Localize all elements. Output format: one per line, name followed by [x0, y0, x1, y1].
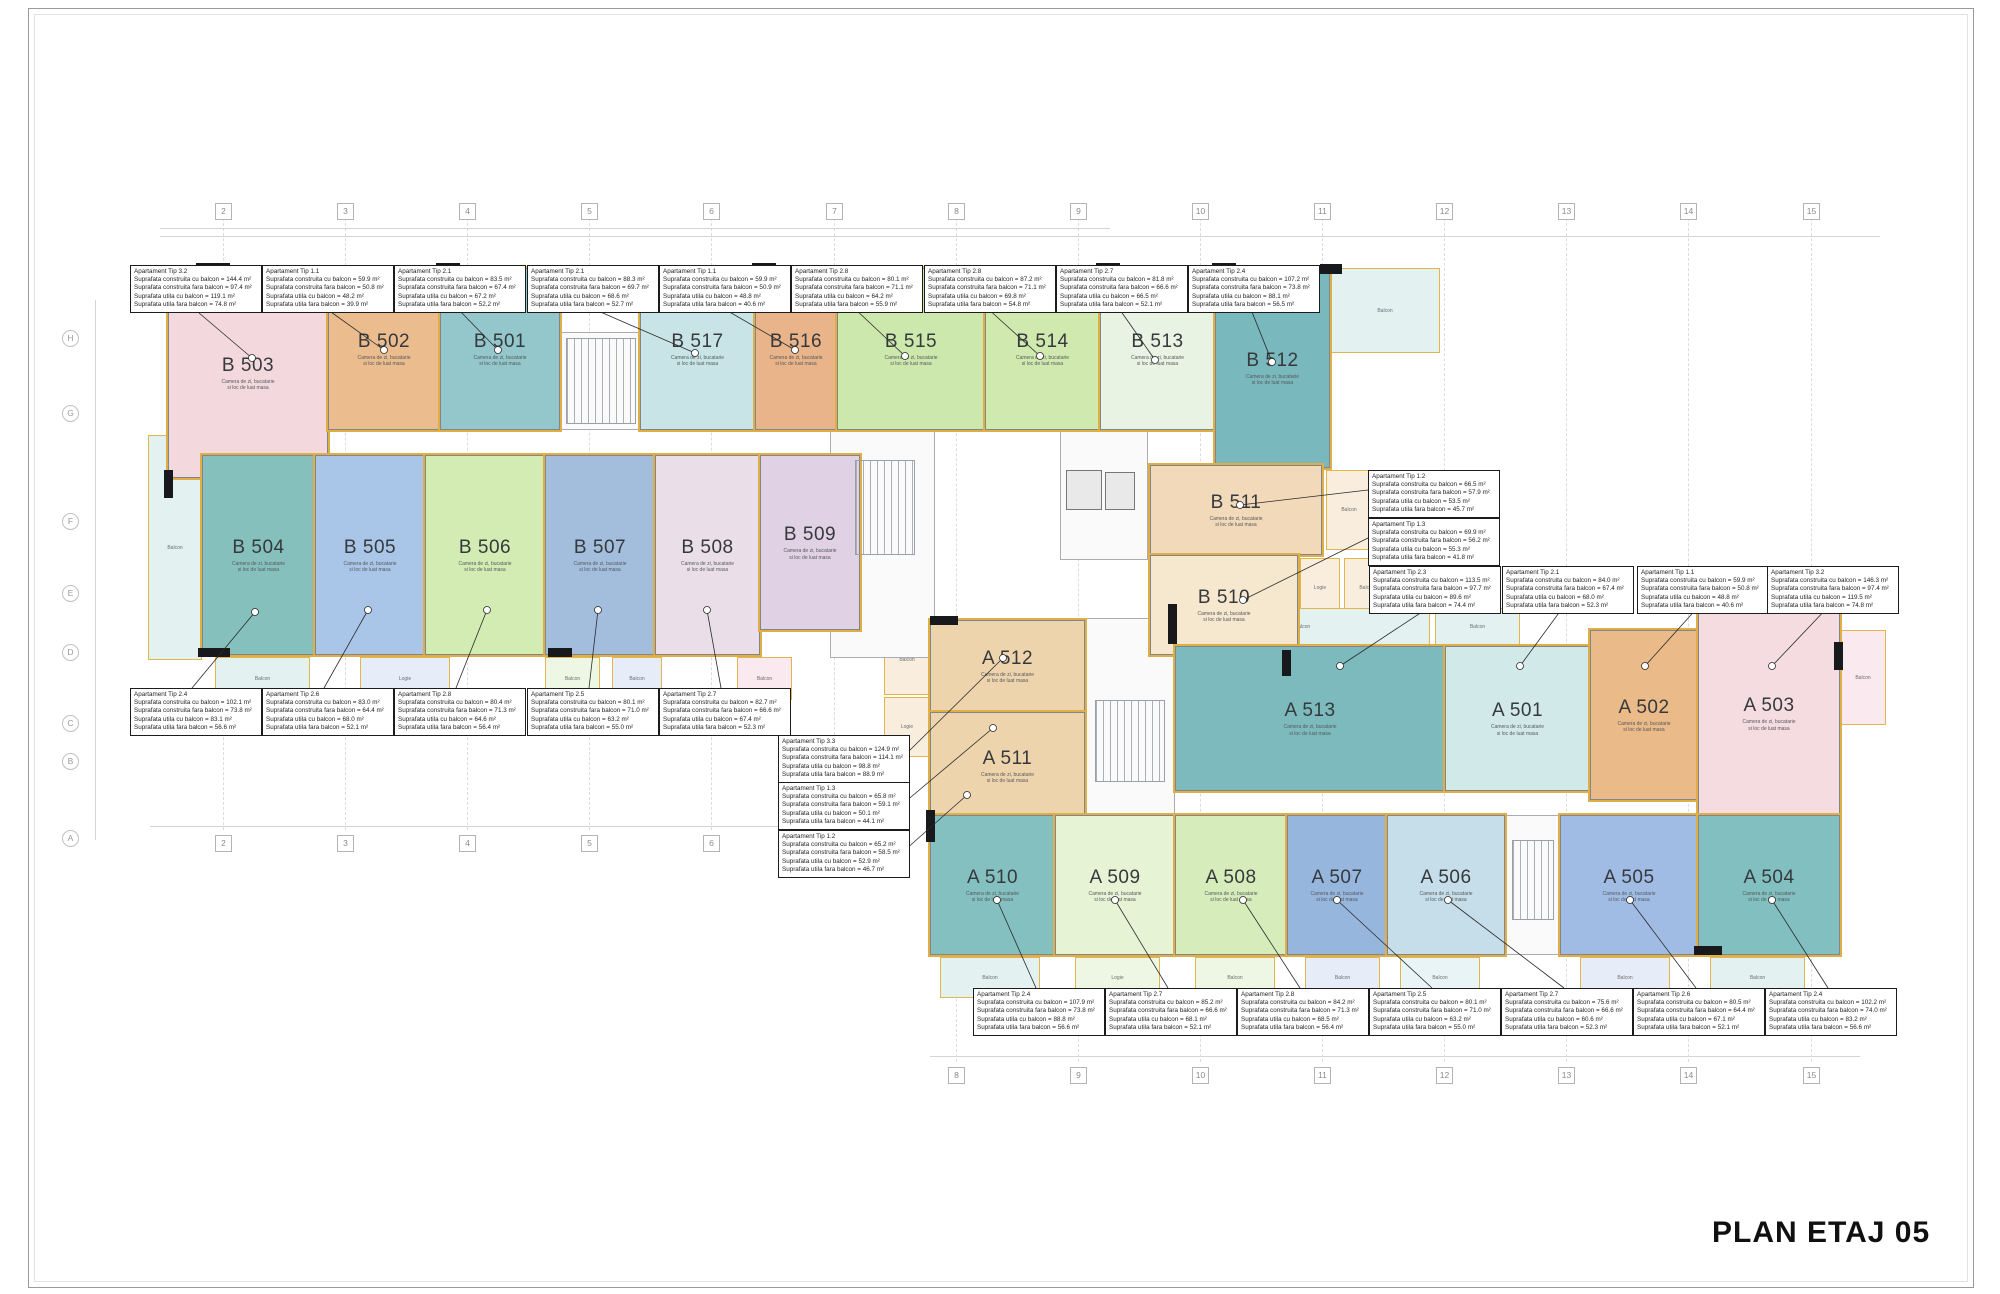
annotation-line: Suprafata construita cu balcon = 80.1 m²: [795, 276, 919, 284]
annotation-line: Suprafata construita fara balcon = 58.5 …: [782, 849, 906, 857]
annotation-line: Suprafata construita cu balcon = 107.9 m…: [977, 999, 1101, 1007]
unit-room-caption: Camera de zi, bucatarie si loc de luat m…: [981, 772, 1034, 785]
annotation-type: Apartament Tip 2.4: [134, 691, 258, 699]
grid-column-bubble: 5: [581, 835, 598, 852]
unit-label: B 502: [358, 331, 410, 353]
balcony-label: Balcon: [1227, 975, 1242, 981]
apartment-type-annotation: Apartament Tip 1.3 Suprafata construita …: [1368, 518, 1500, 566]
apartment-type-annotation: Apartament Tip 2.6 Suprafata construita …: [1633, 988, 1765, 1036]
balcony-label: Logie: [1111, 975, 1123, 981]
unit-room-caption: Camera de zi, bucatarie si loc de luat m…: [1131, 355, 1184, 368]
annotation-line: Suprafata utila cu balcon = 68.1 m²: [1109, 1016, 1233, 1024]
annotation-type: Apartament Tip 1.2: [1372, 473, 1496, 481]
annotation-line: Suprafata construita fara balcon = 57.9 …: [1372, 489, 1496, 497]
annotation-line: Suprafata utila cu balcon = 89.6 m²: [1373, 594, 1497, 602]
annotation-line: Suprafata construita cu balcon = 69.9 m²: [1372, 529, 1496, 537]
unit-room-caption: Camera de zi, bucatarie si loc de luat m…: [1016, 355, 1069, 368]
annotation-line: Suprafata utila cu balcon = 66.5 m²: [1060, 293, 1184, 301]
annotation-line: Suprafata utila fara balcon = 55.0 m²: [531, 724, 655, 732]
stairs: [855, 460, 915, 555]
unit-a508: A 508 Camera de zi, bucatarie si loc de …: [1175, 815, 1287, 955]
annotation-line: Suprafata utila cu balcon = 98.8 m²: [782, 763, 906, 771]
unit-room-caption: Camera de zi, bucatarie si loc de luat m…: [473, 355, 526, 368]
annotation-line: Suprafata utila fara balcon = 39.9 m²: [266, 301, 390, 309]
balcony-label: Balcon: [982, 975, 997, 981]
unit-a509: A 509 Camera de zi, bucatarie si loc de …: [1055, 815, 1175, 955]
annotation-line: Suprafata construita cu balcon = 88.3 m²: [531, 276, 655, 284]
annotation-type: Apartament Tip 2.4: [977, 991, 1101, 999]
annotation-line: Suprafata utila fara balcon = 52.3 m²: [1505, 1024, 1629, 1032]
annotation-line: Suprafata construita cu balcon = 65.2 m²: [782, 841, 906, 849]
annotation-line: Suprafata utila fara balcon = 54.8 m²: [928, 301, 1052, 309]
unit-label: A 501: [1492, 700, 1543, 722]
unit-a502: A 502 Camera de zi, bucatarie si loc de …: [1590, 630, 1698, 800]
annotation-line: Suprafata construita fara balcon = 71.3 …: [398, 707, 522, 715]
unit-room-caption: Camera de zi, bucatarie si loc de luat m…: [1310, 891, 1363, 904]
annotation-line: Suprafata utila cu balcon = 67.2 m²: [398, 293, 522, 301]
annotation-line: Suprafata utila fara balcon = 52.1 m²: [1109, 1024, 1233, 1032]
annotation-line: Suprafata construita fara balcon = 67.4 …: [398, 284, 522, 292]
annotation-line: Suprafata construita fara balcon = 66.6 …: [663, 707, 787, 715]
annotation-line: Suprafata utila cu balcon = 68.6 m²: [531, 293, 655, 301]
annotation-line: Suprafata construita cu balcon = 107.2 m…: [1192, 276, 1316, 284]
annotation-line: Suprafata construita cu balcon = 113.5 m…: [1373, 577, 1497, 585]
unit-room-caption: Camera de zi, bucatarie si loc de luat m…: [966, 891, 1019, 904]
unit-label: B 513: [1131, 331, 1183, 353]
unit-label: A 513: [1284, 700, 1335, 722]
unit-label: B 516: [770, 331, 822, 353]
unit-a501: A 501 Camera de zi, bucatarie si loc de …: [1445, 646, 1590, 791]
unit-label: B 510: [1198, 587, 1250, 609]
grid-column-bubble: 3: [337, 835, 354, 852]
apartment-type-annotation: Apartament Tip 1.3 Suprafata construita …: [778, 782, 910, 830]
apartment-type-annotation: Apartament Tip 2.1 Suprafata construita …: [1502, 566, 1634, 614]
grid-column-bubble: 15: [1803, 203, 1820, 220]
annotation-line: Suprafata utila fara balcon = 40.6 m²: [663, 301, 787, 309]
apartment-type-annotation: Apartament Tip 2.5 Suprafata construita …: [527, 688, 659, 736]
grid-row-bubble: A: [62, 830, 79, 847]
unit-room-caption: Camera de zi, bucatarie si loc de luat m…: [769, 355, 822, 368]
annotation-type: Apartament Tip 2.3: [1373, 569, 1497, 577]
balcony-label: Balcon: [167, 545, 182, 551]
annotation-line: Suprafata utila fara balcon = 56.6 m²: [1769, 1024, 1893, 1032]
wall-segment: [926, 810, 935, 842]
unit-b509: B 509 Camera de zi, bucatarie si loc de …: [760, 455, 860, 630]
annotation-line: Suprafata construita cu balcon = 59.9 m²: [266, 276, 390, 284]
wall-segment: [1694, 946, 1722, 955]
annotation-line: Suprafata utila cu balcon = 63.2 m²: [531, 716, 655, 724]
grid-column-bubble: 5: [581, 203, 598, 220]
annotation-line: Suprafata construita cu balcon = 146.3 m…: [1771, 577, 1895, 585]
annotation-line: Suprafata construita cu balcon = 144.4 m…: [134, 276, 258, 284]
wall-segment: [1320, 264, 1342, 274]
unit-room-caption: Camera de zi, bucatarie si loc de luat m…: [1283, 724, 1336, 737]
annotation-line: Suprafata utila fara balcon = 44.1 m²: [782, 818, 906, 826]
unit-room-caption: Camera de zi, bucatarie si loc de luat m…: [981, 672, 1034, 685]
unit-b506: B 506 Camera de zi, bucatarie si loc de …: [425, 455, 545, 655]
grid-column-bubble: 3: [337, 203, 354, 220]
annotation-line: Suprafata construita fara balcon = 66.6 …: [1109, 1007, 1233, 1015]
apartment-type-annotation: Apartament Tip 2.1 Suprafata construita …: [527, 265, 659, 313]
annotation-line: Suprafata construita cu balcon = 83.5 m²: [398, 276, 522, 284]
elevator: [1066, 470, 1102, 510]
annotation-line: Suprafata construita cu balcon = 102.1 m…: [134, 699, 258, 707]
annotation-type: Apartament Tip 2.5: [531, 691, 655, 699]
annotation-line: Suprafata construita fara balcon = 73.8 …: [134, 707, 258, 715]
unit-room-caption: Camera de zi, bucatarie si loc de luat m…: [221, 379, 274, 392]
unit-b507: B 507 Camera de zi, bucatarie si loc de …: [545, 455, 655, 655]
annotation-line: Suprafata utila cu balcon = 88.8 m²: [977, 1016, 1101, 1024]
wall-segment: [1168, 604, 1177, 644]
unit-room-caption: Camera de zi, bucatarie si loc de luat m…: [1209, 516, 1262, 529]
apartment-type-annotation: Apartament Tip 2.7 Suprafata construita …: [1056, 265, 1188, 313]
balcony: Balcon: [1326, 470, 1372, 550]
annotation-line: Suprafata utila fara balcon = 46.7 m²: [782, 866, 906, 874]
annotation-line: Suprafata construita fara balcon = 71.0 …: [531, 707, 655, 715]
terrace: Balcon: [1330, 268, 1440, 353]
grid-column-bubble: 9: [1070, 203, 1087, 220]
apartment-type-annotation: Apartament Tip 1.2 Suprafata construita …: [778, 830, 910, 878]
annotation-line: Suprafata construita fara balcon = 73.8 …: [977, 1007, 1101, 1015]
balcony-label: Balcon: [1377, 308, 1392, 314]
apartment-type-annotation: Apartament Tip 3.2 Suprafata construita …: [1767, 566, 1899, 614]
annotation-line: Suprafata utila cu balcon = 68.5 m²: [1241, 1016, 1365, 1024]
annotation-line: Suprafata construita fara balcon = 97.4 …: [1771, 585, 1895, 593]
grid-column-bubble: 6: [703, 203, 720, 220]
unit-b511: B 511 Camera de zi, bucatarie si loc de …: [1150, 465, 1322, 555]
annotation-line: Suprafata construita fara balcon = 50.8 …: [1641, 585, 1765, 593]
unit-room-caption: Camera de zi, bucatarie si loc de luat m…: [573, 561, 626, 574]
grid-row-bubble: G: [62, 405, 79, 422]
balcony-label: Balcon: [1341, 507, 1356, 513]
unit-room-caption: Camera de zi, bucatarie si loc de luat m…: [1742, 719, 1795, 732]
annotation-line: Suprafata construita fara balcon = 50.9 …: [663, 284, 787, 292]
annotation-type: Apartament Tip 2.1: [398, 268, 522, 276]
unit-label: B 509: [784, 524, 836, 546]
annotation-line: Suprafata utila cu balcon = 119.1 m²: [134, 293, 258, 301]
annotation-type: Apartament Tip 2.7: [1505, 991, 1629, 999]
annotation-line: Suprafata utila cu balcon = 67.1 m²: [1637, 1016, 1761, 1024]
annotation-line: Suprafata utila fara balcon = 52.1 m²: [1637, 1024, 1761, 1032]
unit-label: A 506: [1420, 867, 1471, 889]
annotation-line: Suprafata utila cu balcon = 88.1 m²: [1192, 293, 1316, 301]
annotation-line: Suprafata utila cu balcon = 67.4 m²: [663, 716, 787, 724]
apartment-type-annotation: Apartament Tip 2.3 Suprafata construita …: [1369, 566, 1501, 614]
unit-b508: B 508 Camera de zi, bucatarie si loc de …: [655, 455, 760, 655]
annotation-type: Apartament Tip 1.1: [663, 268, 787, 276]
annotation-line: Suprafata utila fara balcon = 40.6 m²: [1641, 602, 1765, 610]
grid-column-bubble: 11: [1314, 1067, 1331, 1084]
unit-label: A 503: [1743, 695, 1794, 717]
annotation-line: Suprafata utila fara balcon = 56.5 m²: [1192, 301, 1316, 309]
balcony-label: Balcon: [565, 676, 580, 682]
unit-label: B 506: [459, 537, 511, 559]
annotation-line: Suprafata construita cu balcon = 66.5 m²: [1372, 481, 1496, 489]
annotation-line: Suprafata construita cu balcon = 124.9 m…: [782, 746, 906, 754]
grid-column-bubble: 2: [215, 203, 232, 220]
annotation-line: Suprafata utila cu balcon = 55.3 m²: [1372, 546, 1496, 554]
annotation-line: Suprafata utila cu balcon = 53.5 m²: [1372, 498, 1496, 506]
balcony-label: Balcon: [629, 676, 644, 682]
grid-row-bubble: E: [62, 585, 79, 602]
annotation-line: Suprafata construita fara balcon = 66.6 …: [1060, 284, 1184, 292]
unit-label: A 510: [967, 867, 1018, 889]
apartment-type-annotation: Apartament Tip 2.4 Suprafata construita …: [1188, 265, 1320, 313]
annotation-line: Suprafata construita fara balcon = 73.8 …: [1192, 284, 1316, 292]
unit-room-caption: Camera de zi, bucatarie si loc de luat m…: [1617, 721, 1670, 734]
stairs: [1095, 700, 1165, 782]
annotation-line: Suprafata construita cu balcon = 80.4 m²: [398, 699, 522, 707]
grid-column-bubble: 6: [703, 835, 720, 852]
unit-label: B 514: [1016, 331, 1068, 353]
unit-a511: A 511 Camera de zi, bucatarie si loc de …: [930, 712, 1085, 820]
wall-segment: [1834, 642, 1843, 670]
apartment-type-annotation: Apartament Tip 2.5 Suprafata construita …: [1369, 988, 1501, 1036]
unit-room-caption: Camera de zi, bucatarie si loc de luat m…: [1742, 891, 1795, 904]
annotation-line: Suprafata utila fara balcon = 56.6 m²: [977, 1024, 1101, 1032]
annotation-line: Suprafata construita fara balcon = 114.1…: [782, 754, 906, 762]
annotation-line: Suprafata utila cu balcon = 50.1 m²: [782, 810, 906, 818]
unit-room-caption: Camera de zi, bucatarie si loc de luat m…: [1197, 611, 1250, 624]
unit-room-caption: Camera de zi, bucatarie si loc de luat m…: [232, 561, 285, 574]
grid-column-bubble: 8: [948, 203, 965, 220]
unit-room-caption: Camera de zi, bucatarie si loc de luat m…: [357, 355, 410, 368]
balcony-label: Balcon: [1470, 624, 1485, 630]
unit-a512: A 512 Camera de zi, bucatarie si loc de …: [930, 620, 1085, 712]
unit-room-caption: Camera de zi, bucatarie si loc de luat m…: [343, 561, 396, 574]
apartment-type-annotation: Apartament Tip 2.7 Suprafata construita …: [1501, 988, 1633, 1036]
annotation-line: Suprafata utila cu balcon = 64.2 m²: [795, 293, 919, 301]
annotation-type: Apartament Tip 2.7: [1109, 991, 1233, 999]
annotation-line: Suprafata construita fara balcon = 59.1 …: [782, 801, 906, 809]
annotation-line: Suprafata utila cu balcon = 83.1 m²: [134, 716, 258, 724]
annotation-line: Suprafata utila fara balcon = 52.3 m²: [1506, 602, 1630, 610]
grid-row-bubble: D: [62, 644, 79, 661]
plan-title: PLAN ETAJ 05: [1712, 1216, 1930, 1250]
annotation-line: Suprafata construita cu balcon = 85.2 m²: [1109, 999, 1233, 1007]
annotation-line: Suprafata construita cu balcon = 81.8 m²: [1060, 276, 1184, 284]
annotation-line: Suprafata utila fara balcon = 41.8 m²: [1372, 554, 1496, 562]
grid-column-bubble: 10: [1192, 1067, 1209, 1084]
annotation-line: Suprafata utila fara balcon = 52.2 m²: [398, 301, 522, 309]
apartment-type-annotation: Apartament Tip 2.8 Suprafata construita …: [791, 265, 923, 313]
balcony-label: Logie: [1314, 585, 1326, 591]
unit-room-caption: Camera de zi, bucatarie si loc de luat m…: [1204, 891, 1257, 904]
annotation-line: Suprafata construita fara balcon = 66.6 …: [1505, 1007, 1629, 1015]
balcony: Balcon: [1840, 630, 1886, 725]
balcony-label: Balcon: [1617, 975, 1632, 981]
annotation-line: Suprafata utila fara balcon = 45.7 m²: [1372, 506, 1496, 514]
annotation-type: Apartament Tip 2.4: [1769, 991, 1893, 999]
stairs: [1512, 840, 1554, 920]
annotation-line: Suprafata utila fara balcon = 52.1 m²: [266, 724, 390, 732]
unit-label: B 505: [344, 537, 396, 559]
unit-a510: A 510 Camera de zi, bucatarie si loc de …: [930, 815, 1055, 955]
annotation-line: Suprafata utila fara balcon = 55.0 m²: [1373, 1024, 1497, 1032]
annotation-type: Apartament Tip 2.6: [1637, 991, 1761, 999]
unit-room-caption: Camera de zi, bucatarie si loc de luat m…: [783, 548, 836, 561]
annotation-type: Apartament Tip 2.1: [1506, 569, 1630, 577]
annotation-line: Suprafata construita fara balcon = 69.7 …: [531, 284, 655, 292]
dimension-line: [160, 236, 1880, 237]
annotation-type: Apartament Tip 2.8: [795, 268, 919, 276]
balcony-label: Balcon: [1335, 975, 1350, 981]
annotation-type: Apartament Tip 1.3: [1372, 521, 1496, 529]
annotation-type: Apartament Tip 3.2: [1771, 569, 1895, 577]
annotation-line: Suprafata utila fara balcon = 74.8 m²: [134, 301, 258, 309]
annotation-line: Suprafata utila cu balcon = 119.5 m²: [1771, 594, 1895, 602]
grid-column-bubble: 13: [1558, 1067, 1575, 1084]
apartment-type-annotation: Apartament Tip 2.7 Suprafata construita …: [659, 688, 791, 736]
unit-label: A 508: [1205, 867, 1256, 889]
unit-a503: A 503 Camera de zi, bucatarie si loc de …: [1698, 612, 1840, 815]
annotation-type: Apartament Tip 1.2: [782, 833, 906, 841]
grid-row-bubble: B: [62, 753, 79, 770]
annotation-line: Suprafata construita cu balcon = 65.8 m²: [782, 793, 906, 801]
annotation-line: Suprafata construita fara balcon = 71.0 …: [1373, 1007, 1497, 1015]
annotation-type: Apartament Tip 2.1: [531, 268, 655, 276]
annotation-type: Apartament Tip 2.8: [928, 268, 1052, 276]
annotation-type: Apartament Tip 2.7: [663, 691, 787, 699]
grid-column-bubble: 14: [1680, 1067, 1697, 1084]
annotation-type: Apartament Tip 1.3: [782, 785, 906, 793]
elevator: [1105, 472, 1135, 510]
apartment-type-annotation: Apartament Tip 1.1 Suprafata construita …: [1637, 566, 1769, 614]
annotation-line: Suprafata utila cu balcon = 52.9 m²: [782, 858, 906, 866]
unit-a507: A 507 Camera de zi, bucatarie si loc de …: [1287, 815, 1387, 955]
balcony-label: Logie: [399, 676, 411, 682]
wall-segment: [1282, 650, 1291, 676]
annotation-line: Suprafata construita cu balcon = 82.7 m²: [663, 699, 787, 707]
annotation-line: Suprafata construita cu balcon = 80.1 m²: [531, 699, 655, 707]
annotation-type: Apartament Tip 2.8: [1241, 991, 1365, 999]
apartment-type-annotation: Apartament Tip 2.4 Suprafata construita …: [130, 688, 262, 736]
balcony-label: Balcon: [1855, 675, 1870, 681]
unit-label: A 505: [1603, 867, 1654, 889]
wall-segment: [198, 648, 230, 657]
unit-label: B 501: [474, 331, 526, 353]
dimension-line: [160, 228, 1110, 229]
grid-column-bubble: 13: [1558, 203, 1575, 220]
annotation-line: Suprafata utila fara balcon = 74.8 m²: [1771, 602, 1895, 610]
annotation-line: Suprafata construita cu balcon = 87.2 m²: [928, 276, 1052, 284]
annotation-line: Suprafata utila cu balcon = 63.2 m²: [1373, 1016, 1497, 1024]
annotation-line: Suprafata utila fara balcon = 52.3 m²: [663, 724, 787, 732]
unit-label: B 507: [574, 537, 626, 559]
grid-row-bubble: H: [62, 330, 79, 347]
apartment-type-annotation: Apartament Tip 3.2 Suprafata construita …: [130, 265, 262, 313]
unit-label: B 508: [681, 537, 733, 559]
grid-column-bubble: 4: [459, 203, 476, 220]
unit-label: A 512: [982, 648, 1033, 670]
annotation-line: Suprafata construita fara balcon = 97.7 …: [1373, 585, 1497, 593]
apartment-type-annotation: Apartament Tip 1.1 Suprafata construita …: [659, 265, 791, 313]
unit-label: B 504: [232, 537, 284, 559]
grid-column-bubble: 14: [1680, 203, 1697, 220]
annotation-line: Suprafata utila fara balcon = 56.6 m²: [134, 724, 258, 732]
grid-column-bubble: 10: [1192, 203, 1209, 220]
wall-segment: [930, 616, 958, 625]
unit-label: B 512: [1246, 350, 1298, 372]
annotation-type: Apartament Tip 3.2: [134, 268, 258, 276]
annotation-type: Apartament Tip 2.5: [1373, 991, 1497, 999]
grid-column-bubble: 4: [459, 835, 476, 852]
annotation-line: Suprafata utila cu balcon = 60.6 m²: [1505, 1016, 1629, 1024]
dimension-line: [95, 300, 96, 840]
annotation-type: Apartament Tip 2.4: [1192, 268, 1316, 276]
annotation-type: Apartament Tip 2.7: [1060, 268, 1184, 276]
annotation-line: Suprafata construita cu balcon = 59.9 m²: [663, 276, 787, 284]
apartment-type-annotation: Apartament Tip 2.1 Suprafata construita …: [394, 265, 526, 313]
grid-column-bubble: 8: [948, 1067, 965, 1084]
annotation-line: Suprafata utila cu balcon = 64.6 m²: [398, 716, 522, 724]
annotation-line: Suprafata utila cu balcon = 48.2 m²: [266, 293, 390, 301]
apartment-type-annotation: Apartament Tip 2.8 Suprafata construita …: [1237, 988, 1369, 1036]
annotation-line: Suprafata utila cu balcon = 68.0 m²: [1506, 594, 1630, 602]
annotation-line: Suprafata construita fara balcon = 56.2 …: [1372, 537, 1496, 545]
annotation-line: Suprafata construita cu balcon = 59.9 m²: [1641, 577, 1765, 585]
grid-row-bubble: F: [62, 513, 79, 530]
balcony-label: Balcon: [255, 676, 270, 682]
annotation-line: Suprafata utila cu balcon = 83.2 m²: [1769, 1016, 1893, 1024]
apartment-type-annotation: Apartament Tip 2.4 Suprafata construita …: [973, 988, 1105, 1036]
annotation-line: Suprafata construita fara balcon = 97.4 …: [134, 284, 258, 292]
apartment-type-annotation: Apartament Tip 2.4 Suprafata construita …: [1765, 988, 1897, 1036]
unit-label: B 511: [1211, 492, 1262, 514]
unit-a504: A 504 Camera de zi, bucatarie si loc de …: [1698, 815, 1840, 955]
unit-label: A 509: [1089, 867, 1140, 889]
wall-segment: [164, 470, 173, 498]
unit-label: A 504: [1743, 867, 1794, 889]
unit-label: B 517: [671, 331, 723, 353]
annotation-type: Apartament Tip 1.1: [1641, 569, 1765, 577]
apartment-type-annotation: Apartament Tip 2.6 Suprafata construita …: [262, 688, 394, 736]
unit-room-caption: Camera de zi, bucatarie si loc de luat m…: [671, 355, 724, 368]
annotation-line: Suprafata utila fara balcon = 74.4 m²: [1373, 602, 1497, 610]
annotation-line: Suprafata construita fara balcon = 74.0 …: [1769, 1007, 1893, 1015]
unit-room-caption: Camera de zi, bucatarie si loc de luat m…: [884, 355, 937, 368]
floor-plan-sheet: 2 3 4 5 6 7 8 9 10 11 12 13 14 15 2 3 4 …: [0, 0, 2000, 1294]
annotation-line: Suprafata utila cu balcon = 48.8 m²: [1641, 594, 1765, 602]
annotation-line: Suprafata construita cu balcon = 84.2 m²: [1241, 999, 1365, 1007]
unit-label: A 511: [983, 748, 1033, 770]
annotation-line: Suprafata construita fara balcon = 64.4 …: [266, 707, 390, 715]
annotation-line: Suprafata utila fara balcon = 56.4 m²: [1241, 1024, 1365, 1032]
apartment-type-annotation: Apartament Tip 1.2 Suprafata construita …: [1368, 470, 1500, 518]
annotation-line: Suprafata utila fara balcon = 56.4 m²: [398, 724, 522, 732]
annotation-line: Suprafata utila cu balcon = 68.0 m²: [266, 716, 390, 724]
grid-column-bubble: 11: [1314, 203, 1331, 220]
unit-label: B 515: [885, 331, 937, 353]
annotation-line: Suprafata utila fara balcon = 55.9 m²: [795, 301, 919, 309]
unit-label: A 507: [1311, 867, 1362, 889]
apartment-type-annotation: Apartament Tip 1.1 Suprafata construita …: [262, 265, 394, 313]
unit-b504: B 504 Camera de zi, bucatarie si loc de …: [202, 455, 315, 655]
apartment-type-annotation: Apartament Tip 2.7 Suprafata construita …: [1105, 988, 1237, 1036]
annotation-type: Apartament Tip 2.6: [266, 691, 390, 699]
unit-label: A 502: [1618, 697, 1669, 719]
grid-column-bubble: 9: [1070, 1067, 1087, 1084]
annotation-line: Suprafata utila fara balcon = 88.9 m²: [782, 771, 906, 779]
annotation-line: Suprafata utila fara balcon = 52.7 m²: [531, 301, 655, 309]
grid-column-bubble: 2: [215, 835, 232, 852]
balcony-label: Balcon: [757, 676, 772, 682]
unit-a513: A 513 Camera de zi, bucatarie si loc de …: [1175, 646, 1445, 791]
dimension-line: [930, 1056, 1860, 1057]
grid-column-bubble: 15: [1803, 1067, 1820, 1084]
annotation-line: Suprafata utila fara balcon = 52.1 m²: [1060, 301, 1184, 309]
annotation-type: Apartament Tip 2.8: [398, 691, 522, 699]
